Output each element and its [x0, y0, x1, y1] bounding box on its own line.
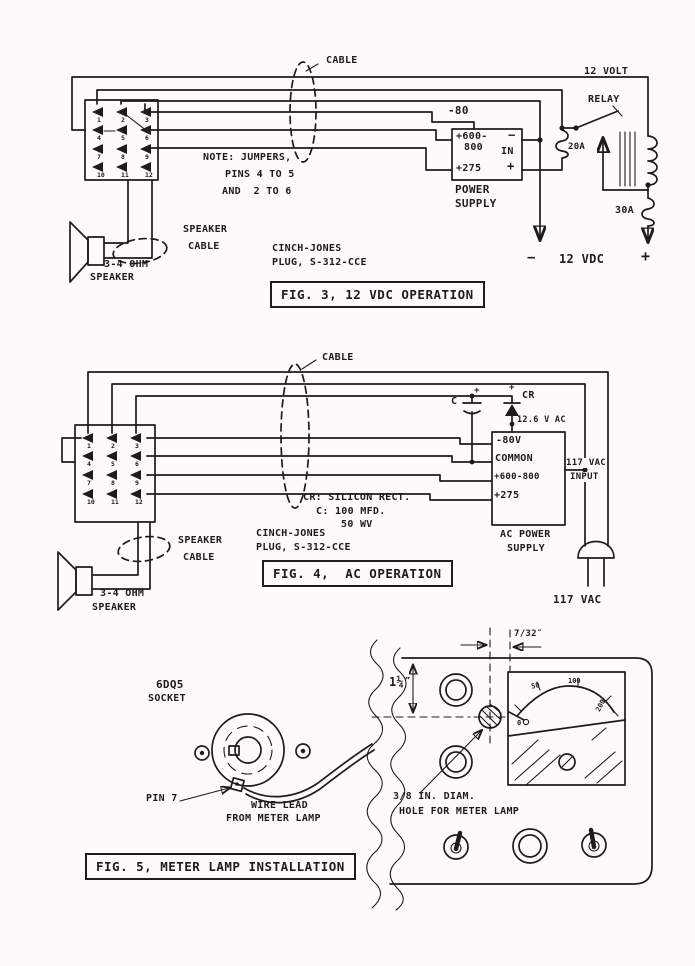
fig5-caption: FIG. 5, METER LAMP INSTALLATION	[85, 853, 356, 880]
fig4-126vac-label: 12.6 V AC	[517, 416, 566, 426]
fig3-speaker-cable-label1: SPEAKER	[183, 224, 227, 236]
pin-number: 1	[87, 442, 91, 450]
fig3-diagram: 1 2 3 4 5 6 7 8 9 10 11 12	[70, 62, 657, 282]
fig3-plug-label1: CINCH-JONES	[272, 243, 342, 255]
pin-number: 12	[135, 498, 143, 506]
pin-number: 10	[87, 498, 95, 506]
pin-number: 9	[145, 153, 149, 161]
fig4-speaker-wires	[92, 522, 150, 589]
pin-number: 8	[111, 479, 115, 487]
fig5-knob	[513, 829, 547, 863]
fig3-speaker-wires	[104, 180, 152, 258]
fig4-ps-row3: +600-800	[494, 472, 540, 482]
fig3-fuse-30a	[642, 198, 654, 226]
scanned-schematic-page: 1 2 3 4 5 6 7 8 9 10 11 12	[0, 0, 695, 966]
fig4-speaker-cable-label1: SPEAKER	[178, 535, 222, 547]
fig3-speaker-label1: 3-4 OHM	[104, 259, 148, 271]
pin-number: 12	[145, 171, 153, 179]
pin-number: 6	[145, 134, 149, 142]
pin-number: 10	[97, 171, 105, 179]
pin-number: 4	[97, 134, 101, 142]
fig4-speaker-label1: 3-4 OHM	[100, 588, 144, 600]
fig5-socket-label1: 6DQ5	[156, 679, 184, 692]
fig3-speaker-label2: SPEAKER	[90, 272, 134, 284]
fig4-ps-row1: -80V	[496, 435, 521, 447]
fig4-input-label2: INPUT	[570, 472, 599, 482]
fig3-relay-core	[620, 132, 635, 186]
fig4-c-plus: +	[474, 386, 480, 396]
pin-number: 3	[145, 116, 149, 124]
fig3-cable-label: CABLE	[326, 55, 358, 67]
fig3-speaker-cable-label2: CABLE	[188, 241, 220, 253]
fig3-note-line3: AND 2 TO 6	[222, 186, 292, 198]
fig4-ps-caption2: SUPPLY	[507, 543, 545, 555]
fig5-panel-hole	[440, 746, 472, 778]
fig4-speaker-horn	[58, 552, 76, 610]
pin-number: 4	[87, 460, 91, 468]
pin-number: 1	[97, 116, 101, 124]
pin-number: 5	[121, 134, 125, 142]
fig4-caption: FIG. 4, AC OPERATION	[262, 560, 453, 587]
fig5-toggle-switch	[582, 830, 606, 857]
fig5-panel	[390, 658, 652, 884]
fig5-meter: 0 50 100 200	[508, 672, 625, 785]
fig4-c-label: C	[451, 396, 457, 408]
pin-number: 7	[87, 479, 91, 487]
fig5-meter-lamp-hole	[474, 700, 507, 734]
fig4-cr-note: CR: SILICON RECT.	[303, 492, 410, 504]
fig4-plug-label1: CINCH-JONES	[256, 528, 326, 540]
fig3-ps-caption1: POWER	[455, 184, 490, 197]
fig4-c-note: C: 100 MFD.	[316, 506, 386, 518]
fig3-speaker-horn	[70, 222, 88, 282]
pin-number: 8	[121, 153, 125, 161]
fig4-cable-oval	[281, 364, 309, 508]
fig3-caption: FIG. 3, 12 VDC OPERATION	[270, 281, 485, 308]
fig5-wire-lead-label1: WIRE LEAD	[251, 800, 308, 812]
fig5-torn-edge	[367, 640, 383, 908]
fig3-ps-row2: 800	[464, 142, 483, 154]
pin-number: 2	[121, 116, 125, 124]
meter-scale-label: 50	[530, 681, 540, 691]
fig4-wall-plug	[578, 542, 614, 587]
fig5-height-dim-label: 1¼″	[389, 676, 412, 690]
fig5-hole-label1: 3/8 IN. DIAM.	[393, 791, 475, 803]
fig4-plug-label2: PLUG, S-312-CCE	[256, 542, 351, 554]
fig4-c-note2: 50 WV	[341, 519, 373, 531]
fig5-wire-lead-label2: FROM METER LAMP	[226, 813, 321, 825]
pin-number: 3	[135, 442, 139, 450]
pin-number: 11	[111, 498, 119, 506]
fig3-ps-row1: +600-	[456, 131, 488, 143]
fig5-wire-lead	[244, 744, 372, 797]
pin-number: 9	[135, 479, 139, 487]
fig4-capacitor	[463, 394, 481, 465]
fig3-relay-blade	[576, 111, 618, 128]
fig4-117vac-label: 117 VAC	[553, 594, 601, 607]
fig5-socket-label2: SOCKET	[148, 693, 186, 705]
fig4-ps-row4: +275	[494, 490, 519, 502]
fig3-dc-neg: −	[527, 250, 536, 266]
pin-number: 7	[97, 153, 101, 161]
fig4-speaker-cable-label2: CABLE	[183, 552, 215, 564]
fig4-speaker-label2: SPEAKER	[92, 602, 136, 614]
fig5-toggle-switch	[444, 833, 468, 859]
meter-scale-label: 0	[517, 719, 521, 727]
fig3-ps-row3: +275	[456, 163, 481, 175]
fig4-cr-plus: +	[509, 383, 515, 393]
fig3-relay-coil	[648, 136, 657, 185]
fig3-ps-caption2: SUPPLY	[455, 198, 497, 211]
fig3-relay-label1: 12 VOLT	[584, 66, 628, 78]
fig4-ps-row2: COMMON	[495, 453, 533, 465]
fig3-fuse-20a-label: 20A	[568, 142, 585, 152]
fig3-minus80-label: -80	[448, 105, 469, 118]
fig3-dc-pos: +	[641, 248, 650, 265]
fig4-ps-caption1: AC POWER	[500, 529, 551, 541]
fig5-panel-hole	[440, 674, 472, 706]
schematic-line-art: 1 2 3 4 5 6 7 8 9 10 11 12	[0, 0, 695, 966]
pin-number: 2	[111, 442, 115, 450]
fig3-fuse-30a-label: 30A	[615, 205, 634, 217]
fig4-plug-pins: 1 2 3 4 5 6 7 8 9 10 11 12	[82, 433, 143, 506]
meter-scale-label: 100	[568, 677, 581, 685]
fig3-ps-in: IN	[501, 146, 514, 158]
fig4-cable-label: CABLE	[322, 352, 354, 364]
pin-number: 6	[135, 460, 139, 468]
fig5-width-dim-label: 7/32″	[514, 629, 543, 639]
fig4-speaker-cable-oval	[117, 533, 172, 564]
fig3-plug-label2: PLUG, S-312-CCE	[272, 257, 367, 269]
fig3-dc-label: 12 VDC	[559, 253, 604, 267]
fig3-note-line2: PINS 4 TO 5	[225, 169, 295, 181]
fig3-ps-neg-terminal: −	[508, 129, 516, 143]
fig3-ps-pos-terminal: +	[507, 160, 515, 174]
fig3-note-line1: NOTE: JUMPERS,	[203, 152, 292, 164]
fig3-plug-pins: 1 2 3 4 5 6 7 8 9 10 11 12	[92, 107, 153, 179]
fig5-tube-socket	[195, 714, 310, 791]
pin-number: 11	[121, 171, 129, 179]
fig3-relay-label2: RELAY	[588, 94, 620, 106]
fig4-input-label1: 117 VAC	[566, 458, 606, 468]
fig5-pin7-label: PIN 7	[146, 793, 178, 805]
pin-number: 5	[111, 460, 115, 468]
fig5-hole-label2: HOLE FOR METER LAMP	[399, 806, 519, 818]
fig4-cr-label: CR	[522, 390, 535, 402]
fig3-fuse-20a	[522, 128, 568, 170]
